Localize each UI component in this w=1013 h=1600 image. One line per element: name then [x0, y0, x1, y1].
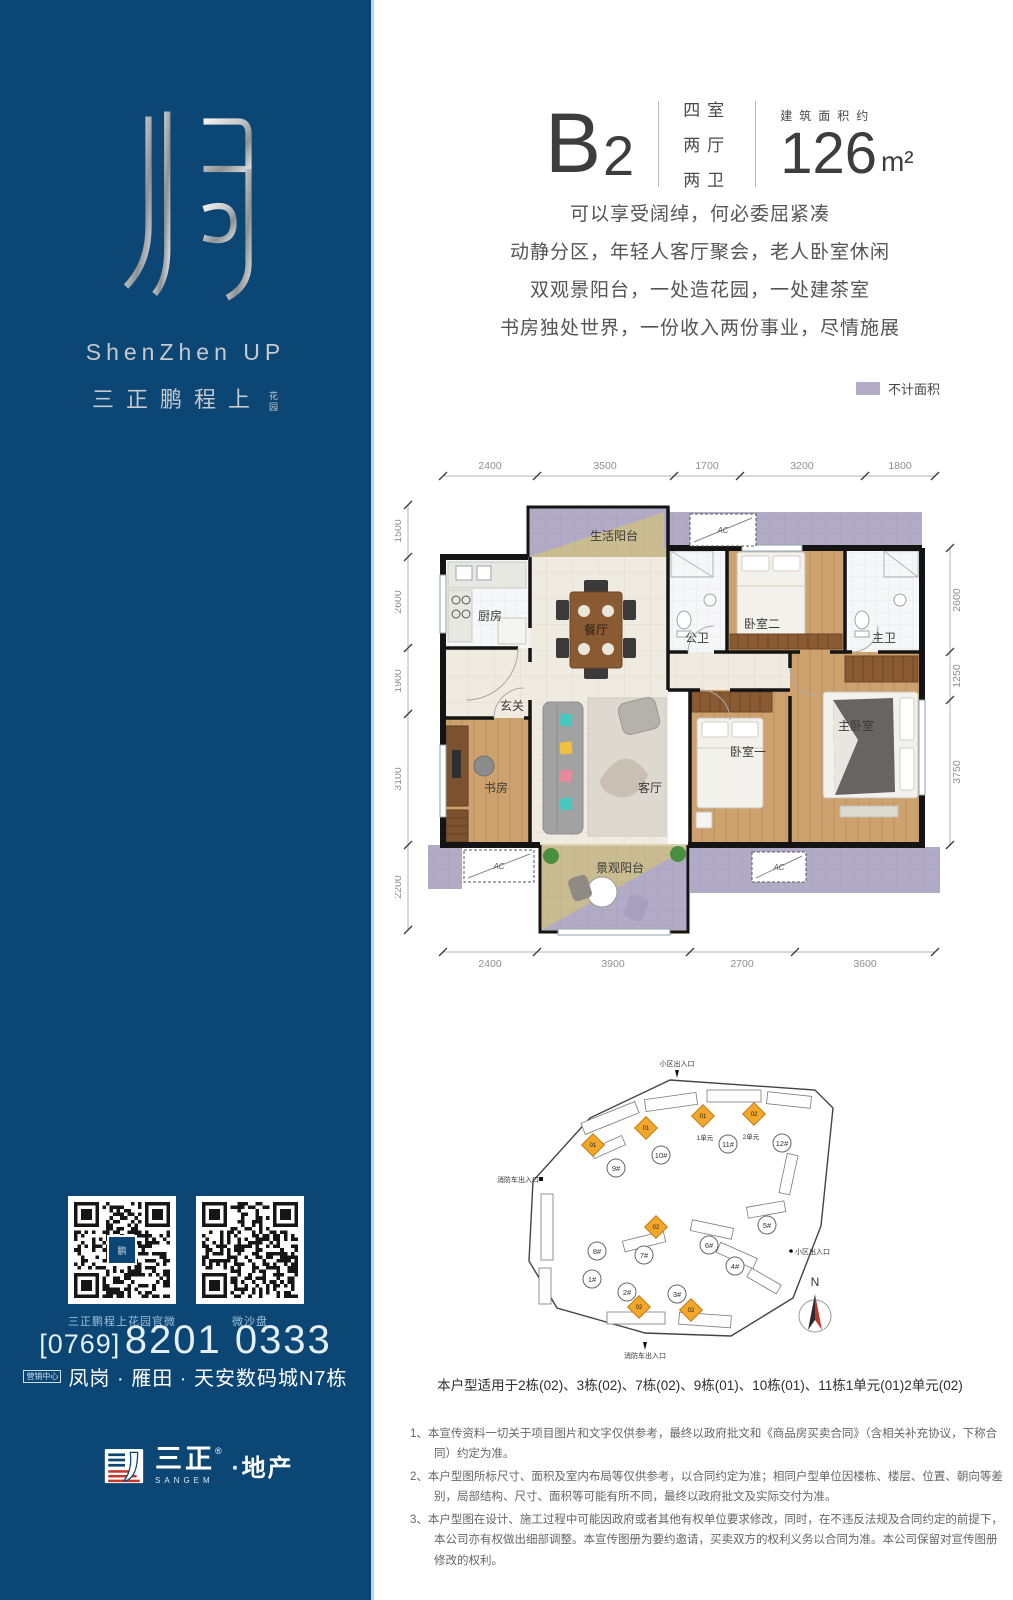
area-block: 建筑面积约 126 m² — [780, 107, 913, 180]
svg-text:01: 01 — [700, 1114, 707, 1120]
svg-text:02: 02 — [751, 1112, 758, 1118]
qr-center-logo: 鹏 — [107, 1235, 137, 1265]
developer-logo-row: 三正® SANGEM ·地产 — [103, 1446, 294, 1485]
svg-text:1250: 1250 — [951, 664, 963, 688]
disclaimer-item: 2、本户型图所标尺寸、面积及室内布局等仅供参考，以合同约定为准；相同户型单位因楼… — [410, 1467, 1004, 1508]
legend-swatch-purple — [856, 382, 880, 395]
developer-name-en: SANGEM — [155, 1476, 222, 1485]
unit-letter: B — [545, 108, 601, 179]
phone-number: 8201 0333 — [125, 1318, 332, 1362]
svg-text:02: 02 — [636, 1305, 643, 1311]
compass-icon: N — [799, 1275, 831, 1332]
svg-text:2600: 2600 — [951, 588, 963, 612]
svg-text:3500: 3500 — [593, 460, 617, 472]
sales-address-row: 营销中心 凤岗 · 雁田 · 天安数码城N7栋 — [0, 1362, 371, 1391]
entrance-right: 小区出入口 — [795, 1247, 830, 1256]
svg-text:2700: 2700 — [730, 958, 754, 968]
tagline-line: 双观景阳台，一处造花园，一处建茶室 — [400, 272, 1000, 310]
brand-name-cn: 三正鹏程上 — [92, 382, 262, 414]
tagline-block: 可以享受阔绰，何必委屈紧凑 动静分区，年轻人客厅聚会，老人卧室休闲 双观景阳台，… — [400, 196, 1000, 348]
svg-text:1单元: 1单元 — [697, 1133, 714, 1142]
svg-text:3900: 3900 — [601, 958, 625, 968]
room-label-kitchen: 厨房 — [478, 608, 502, 623]
room-label-foyer: 玄关 — [500, 698, 524, 713]
svg-text:1#: 1# — [588, 1275, 597, 1284]
room-label-bedroom2: 卧室二 — [744, 616, 780, 631]
qr-code-official-wechat: 鹏 — [68, 1196, 176, 1304]
svg-text:6#: 6# — [705, 1241, 714, 1250]
svg-text:3600: 3600 — [853, 958, 877, 968]
brand-logo-icon — [111, 88, 261, 320]
svg-text:02: 02 — [688, 1308, 695, 1314]
room-label-study: 书房 — [484, 780, 508, 795]
svg-text:AC: AC — [772, 863, 784, 872]
header-divider — [755, 101, 756, 187]
brand-name-en: ShenZhen UP — [0, 339, 371, 366]
entrance-left: 消防车出入口 — [497, 1175, 539, 1184]
room-label-master-bath: 主卫 — [872, 631, 896, 645]
marketing-center-badge: 营销中心 — [23, 1370, 61, 1384]
svg-text:3200: 3200 — [790, 460, 814, 472]
qr-code-section: 鹏 三正鹏程上花园官微 微沙盘 — [68, 1196, 304, 1329]
brand-sidebar: ShenZhen UP 三正鹏程上 花园 鹏 三正鹏程上花园官微 微沙盘 [07… — [0, 0, 374, 1600]
svg-text:2200: 2200 — [395, 875, 404, 899]
svg-text:11#: 11# — [722, 1140, 735, 1149]
room-count-baths: 两卫 — [683, 166, 731, 191]
svg-text:3100: 3100 — [395, 767, 404, 791]
applicable-buildings-caption: 本户型适用于2栋(02)、3栋(02)、7栋(02)、9栋(01)、10栋(01… — [400, 1374, 1000, 1394]
svg-text:2#: 2# — [623, 1288, 632, 1297]
svg-text:02: 02 — [653, 1225, 660, 1231]
area-value: 126 — [780, 128, 877, 180]
svg-text:2400: 2400 — [478, 958, 502, 968]
sales-address: 凤岗 · 雁田 · 天安数码城N7栋 — [68, 1362, 347, 1391]
tagline-line: 书房独处世界，一份收入两份事业，尽情施展 — [400, 310, 1000, 348]
svg-text:9#: 9# — [612, 1164, 621, 1173]
svg-text:AC: AC — [492, 862, 504, 871]
floor-plan: 2400 3500 1700 3200 1800 2400 3900 2700 … — [395, 438, 975, 968]
floorplan-legend: 不计面积 — [856, 379, 940, 398]
legend-label: 不计面积 — [888, 379, 940, 398]
disclaimer-item: 3、本户型图在设计、施工过程中可能因政府或者其他有权单位要求修改，同时，在不违反… — [410, 1510, 1004, 1571]
svg-text:1800: 1800 — [888, 460, 912, 472]
svg-text:AC: AC — [716, 526, 728, 535]
header-divider — [658, 101, 659, 187]
tagline-line: 可以享受阔绰，何必委屈紧凑 — [400, 196, 1000, 234]
svg-text:2400: 2400 — [478, 460, 502, 472]
svg-text:01: 01 — [590, 1143, 597, 1149]
svg-text:3#: 3# — [673, 1290, 682, 1299]
svg-text:12#: 12# — [776, 1139, 789, 1148]
svg-text:10#: 10# — [655, 1151, 668, 1160]
room-label-life-balcony: 生活阳台 — [590, 528, 638, 543]
tagline-line: 动静分区，年轻人客厅聚会，老人卧室休闲 — [400, 234, 1000, 272]
developer-name: 三正 — [155, 1444, 215, 1474]
room-count-halls: 两厅 — [683, 131, 731, 156]
svg-text:5#: 5# — [763, 1221, 772, 1230]
developer-emblem-icon — [103, 1447, 145, 1485]
svg-text:7#: 7# — [640, 1251, 649, 1260]
brand-logo-block: ShenZhen UP 三正鹏程上 花园 — [0, 88, 371, 414]
unit-code: B 2 — [545, 108, 634, 179]
disclaimer-block: 1、本宣传资料一切关于项目图片和文字仅供参考，最终以政府批文和《商品房买卖合同》… — [410, 1424, 1004, 1573]
svg-text:3750: 3750 — [951, 760, 963, 784]
svg-text:2600: 2600 — [395, 590, 404, 614]
flyer-page: { "sidebar": { "brand_en": "ShenZhen UP"… — [0, 0, 1013, 1600]
room-count-bedrooms: 四室 — [683, 96, 731, 121]
room-label-dining: 餐厅 — [584, 622, 608, 637]
svg-text:1900: 1900 — [395, 669, 404, 693]
svg-text:8#: 8# — [593, 1247, 602, 1256]
brand-name-tag: 花园 — [268, 391, 279, 414]
svg-text:4#: 4# — [731, 1262, 740, 1271]
developer-suffix: ·地产 — [232, 1448, 294, 1483]
disclaimer-item: 1、本宣传资料一切关于项目图片和文字仅供参考，最终以政府批文和《商品房买卖合同》… — [410, 1424, 1004, 1465]
svg-text:2单元: 2单元 — [743, 1132, 760, 1141]
unit-digit: 2 — [603, 132, 634, 180]
room-label-bedroom1: 卧室一 — [730, 744, 766, 759]
svg-text:01: 01 — [643, 1126, 650, 1132]
site-plan: 01 01 01 02 02 02 02 1# 2# 3# 4# 5# 6# 7… — [495, 1046, 865, 1364]
room-count-list: 四室 两厅 两卫 — [683, 96, 731, 191]
room-label-master-bedroom: 主卧室 — [838, 718, 874, 733]
sales-phone: [0769] 8201 0333 — [0, 1318, 371, 1363]
svg-text:1500: 1500 — [395, 519, 404, 543]
room-label-view-balcony: 景观阳台 — [596, 860, 644, 875]
svg-text:N: N — [811, 1275, 820, 1289]
unit-header: B 2 四室 两厅 两卫 建筑面积约 126 m² — [545, 96, 914, 191]
svg-text:1700: 1700 — [695, 460, 719, 472]
area-unit: m² — [881, 146, 914, 178]
room-label-public-bath: 公卫 — [685, 631, 709, 645]
entrance-bottom: 消防车出入口 — [624, 1351, 666, 1360]
entrance-top: 小区出入口 — [660, 1059, 695, 1068]
qr-code-mini-sandtable — [196, 1196, 304, 1304]
phone-area-code: [0769] — [39, 1329, 120, 1359]
registered-mark: ® — [215, 1446, 222, 1456]
room-label-living: 客厅 — [638, 780, 662, 795]
